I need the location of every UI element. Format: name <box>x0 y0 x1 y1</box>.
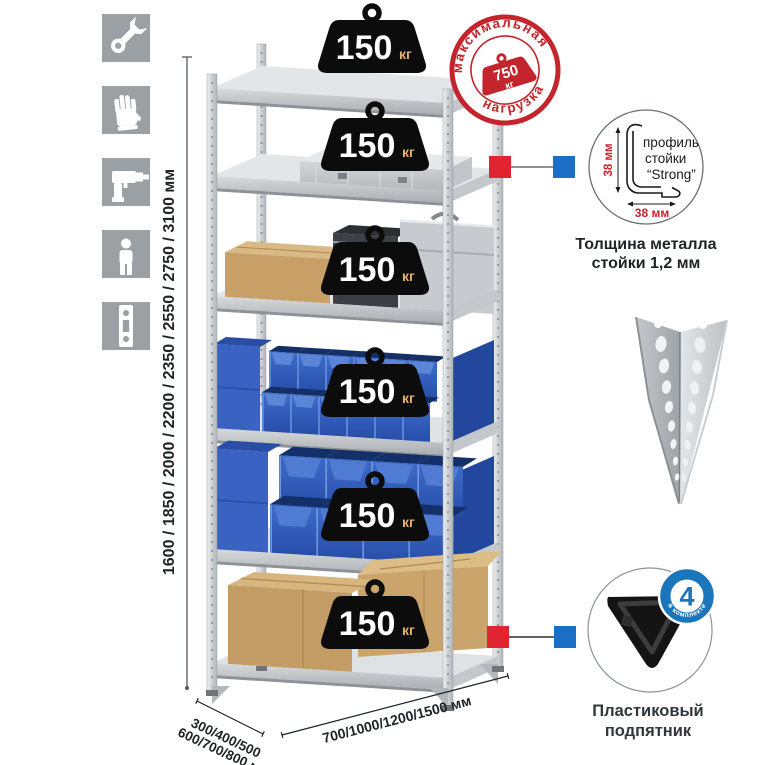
foot-plate <box>492 666 504 672</box>
profile-caption-line2: стойки 1,2 мм <box>592 255 701 272</box>
shelf-load-unit: кг <box>402 514 415 530</box>
height-dimension-label: 1600 / 1850 / 2000 / 2200 / 2350 / 2550 … <box>161 169 178 575</box>
sidebar-icon-wrench <box>102 14 150 62</box>
shelf-load-value: 150 <box>339 251 396 289</box>
sidebar-icon-upright <box>102 302 150 350</box>
profile-label-line3: “Strong” <box>647 167 696 182</box>
sidebar-icon-gloves <box>102 86 150 134</box>
shelf-load-unit: кг <box>402 622 415 638</box>
shelf-load-unit: кг <box>399 46 412 62</box>
metal-angle-profile <box>636 317 727 504</box>
profile-label-line1: профиль <box>643 135 699 150</box>
shelf-load-badge: 150 кг <box>318 6 426 73</box>
shelf-load-value: 150 <box>339 605 396 643</box>
shelf-load-unit: кг <box>402 144 415 160</box>
foot-callout-connector <box>487 626 576 648</box>
profile-detail-circle: 38 мм 38 мм профиль стойки “Strong” <box>589 110 703 224</box>
foot-caption-line1: Пластиковый <box>592 702 703 720</box>
sidebar <box>102 14 150 350</box>
height-dimension: 1600 / 1850 / 2000 / 2200 / 2350 / 2550 … <box>161 57 192 690</box>
profile-dim-vertical-label: 38 мм <box>603 143 615 176</box>
rack-upright-front-right <box>443 89 453 707</box>
rack-profile-icon <box>119 305 133 347</box>
profile-dim-horizontal-label: 38 мм <box>635 206 670 220</box>
callout-marker-blue-top <box>553 156 575 178</box>
max-load-stamp: максимальная нагрузка 750 кг <box>438 2 572 137</box>
depth-dimension: 300/400/500 600/700/800 мм <box>176 698 278 765</box>
quantity-badge: 4 в комплекте <box>659 568 715 624</box>
callout-marker-red-bottom <box>487 626 509 648</box>
foot-detail-circle: 4 в комплекте <box>588 568 715 692</box>
profile-dim-horizontal: 38 мм <box>627 202 676 221</box>
callout-marker-red-top <box>489 156 511 178</box>
profile-caption-line1: Толщина металла <box>575 236 716 253</box>
product-infographic: 1600 / 1850 / 2000 / 2200 / 2350 / 2550 … <box>0 0 765 765</box>
shelf-load-value: 150 <box>336 29 393 67</box>
quantity-value: 4 <box>679 582 694 612</box>
foot-caption-line2: подпятник <box>605 722 692 740</box>
profile-label-line2: стойки <box>645 151 686 166</box>
foot-plate <box>256 666 267 671</box>
shelf-load-unit: кг <box>402 390 415 406</box>
foot-plate <box>206 690 218 696</box>
shelf-load-value: 150 <box>339 127 396 165</box>
sidebar-icon-person <box>102 230 150 278</box>
profile-callout-connector <box>489 156 575 178</box>
shelf-load-value: 150 <box>339 497 396 535</box>
callout-marker-blue-bottom <box>554 626 576 648</box>
infographic-scene: 1600 / 1850 / 2000 / 2200 / 2350 / 2550 … <box>0 0 765 765</box>
shelf-load-unit: кг <box>402 268 415 284</box>
rack-upright-front-left <box>207 74 217 692</box>
sidebar-icon-drill <box>102 158 150 206</box>
shelf-load-value: 150 <box>339 373 396 411</box>
